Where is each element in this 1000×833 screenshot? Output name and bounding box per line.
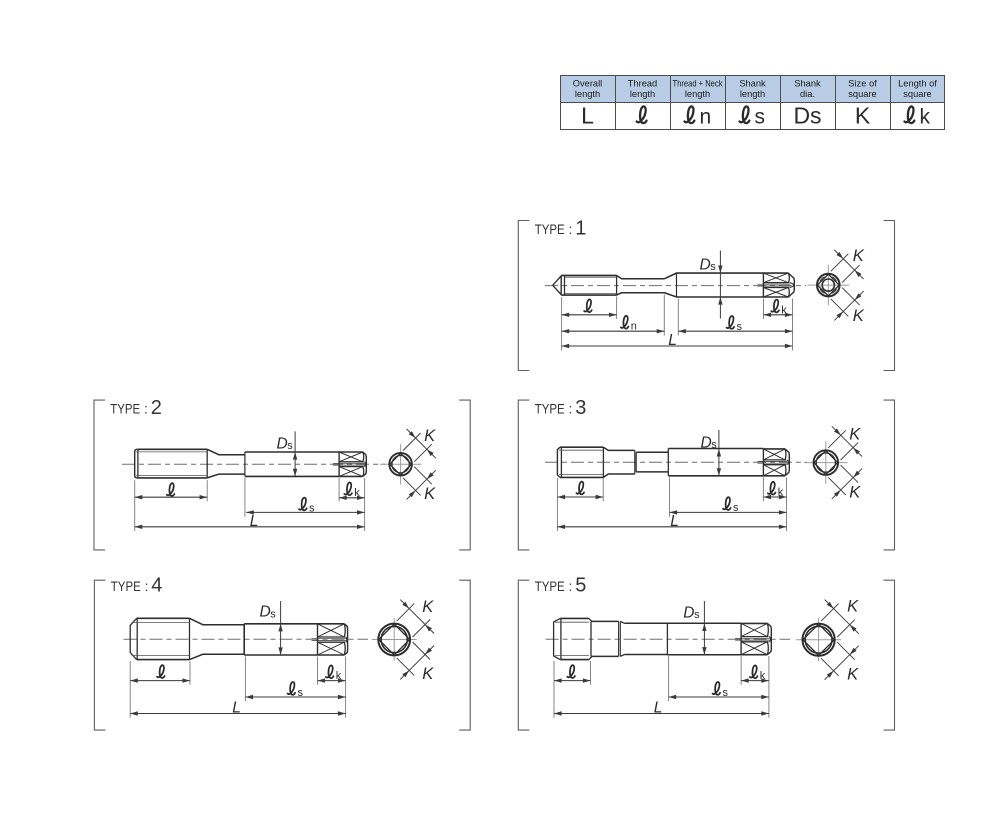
svg-text:Size of: Size of	[848, 79, 877, 89]
svg-text:k: k	[778, 487, 784, 499]
svg-text:n: n	[631, 321, 637, 333]
svg-text:s: s	[694, 609, 700, 621]
svg-text:Overall: Overall	[573, 79, 602, 89]
svg-text:TYPE: TYPE	[535, 400, 565, 416]
svg-text:K: K	[424, 427, 436, 445]
svg-text::: :	[569, 578, 573, 594]
svg-text:TYPE: TYPE	[535, 221, 565, 237]
svg-text:length: length	[740, 89, 765, 99]
svg-text:k: k	[781, 304, 787, 316]
svg-text:s: s	[298, 687, 304, 699]
svg-text:K: K	[847, 666, 859, 684]
svg-text:5: 5	[575, 575, 586, 597]
svg-text:TYPE: TYPE	[111, 578, 141, 594]
svg-text:k: k	[354, 487, 360, 499]
svg-text:s: s	[309, 502, 315, 514]
svg-text:L: L	[581, 103, 594, 129]
svg-text:1: 1	[575, 218, 586, 240]
svg-text:Shank: Shank	[739, 79, 766, 89]
svg-text:s: s	[737, 321, 743, 333]
svg-text:L: L	[654, 700, 663, 717]
svg-text:D: D	[700, 256, 711, 273]
svg-text:Ds: Ds	[793, 103, 821, 129]
svg-text:L: L	[668, 332, 677, 349]
svg-text:K: K	[853, 247, 865, 265]
svg-text:k: k	[336, 670, 342, 682]
svg-text:square: square	[903, 89, 931, 99]
svg-text:Thread: Thread	[628, 79, 657, 89]
svg-text:K: K	[855, 103, 871, 129]
svg-text:L: L	[232, 700, 241, 717]
svg-text:3: 3	[575, 397, 586, 419]
svg-text:s: s	[711, 439, 717, 451]
svg-text:K: K	[849, 484, 861, 502]
svg-text:4: 4	[151, 575, 162, 597]
svg-text:length: length	[575, 89, 600, 99]
svg-text:K: K	[847, 598, 859, 616]
svg-text:s: s	[287, 440, 293, 452]
svg-text:K: K	[424, 485, 436, 503]
svg-text:K: K	[853, 307, 865, 325]
svg-text:dia.: dia.	[800, 89, 815, 99]
svg-text:K: K	[422, 598, 434, 616]
svg-text:square: square	[848, 89, 876, 99]
svg-text:D: D	[701, 434, 712, 451]
svg-text:k: k	[760, 670, 766, 682]
svg-text:TYPE: TYPE	[535, 578, 565, 594]
svg-text::: :	[569, 221, 573, 237]
svg-text:s: s	[733, 502, 739, 514]
svg-text:D: D	[277, 435, 288, 452]
svg-text:Shank: Shank	[794, 79, 821, 89]
svg-text:k: k	[920, 106, 931, 129]
svg-text:K: K	[422, 665, 434, 683]
svg-text:D: D	[260, 604, 271, 621]
svg-text:length: length	[685, 89, 710, 99]
svg-text:L: L	[670, 513, 679, 530]
svg-text::: :	[569, 400, 573, 416]
svg-text::: :	[144, 400, 148, 416]
svg-text:s: s	[710, 261, 716, 273]
svg-text:L: L	[250, 513, 259, 530]
svg-text:K: K	[849, 426, 861, 444]
svg-text:D: D	[683, 604, 694, 621]
svg-text:s: s	[723, 687, 729, 699]
svg-text:2: 2	[151, 397, 162, 419]
svg-text::: :	[145, 578, 149, 594]
svg-text:s: s	[755, 106, 766, 129]
svg-text:Thread + Neck: Thread + Neck	[673, 79, 723, 89]
svg-text:Length of: Length of	[898, 79, 937, 89]
svg-text:n: n	[700, 106, 712, 129]
svg-text:s: s	[270, 608, 276, 620]
svg-text:length: length	[630, 89, 655, 99]
svg-text:TYPE: TYPE	[110, 400, 140, 416]
